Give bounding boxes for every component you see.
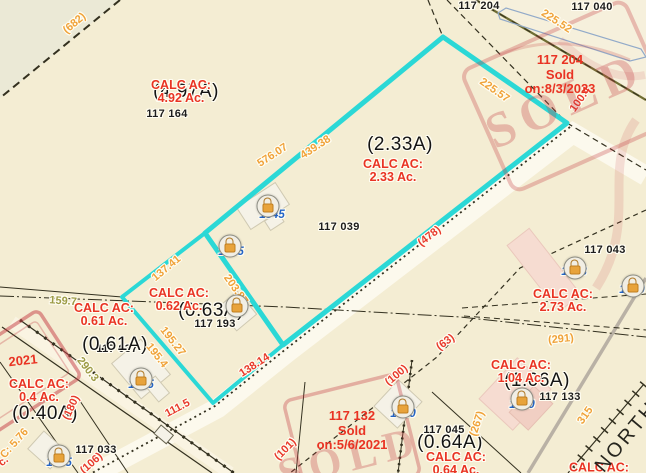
parcel-id-label: 117 164 (146, 109, 187, 121)
calc-acreage-label: CALC AC:2.33 Ac. (363, 158, 423, 184)
calc-acreage-label: CALC AC:0.62 Ac. (149, 287, 209, 313)
padlock-marker-icon[interactable] (392, 396, 415, 419)
deed-acreage-label: (2.33A) (367, 135, 433, 155)
calc-acreage-label: CALC AC:4.92 Ac. (151, 79, 211, 105)
padlock-marker-icon[interactable] (564, 257, 587, 280)
padlock-marker-icon[interactable] (48, 445, 71, 468)
padlock-marker-icon[interactable] (511, 388, 534, 411)
calc-acreage-label: CALC AC:2.73 Ac. (533, 288, 593, 314)
parcel-id-label: 117 039 (318, 222, 359, 234)
calc-acreage-label: CALC AC:0.61 Ac. (74, 302, 134, 328)
sold-stamp-text: 117 132Soldon:5/6/2021 (317, 409, 388, 453)
dimension-label: 137.41 (150, 254, 183, 284)
sold-stamp-text: 117 204Soldon:8/3/2023 (525, 53, 596, 97)
sold-stamp-text: 2021 (8, 352, 38, 369)
calc-acreage-label: CALC AC:0.64 Ac. (426, 451, 486, 473)
padlock-marker-icon[interactable] (130, 368, 153, 391)
dimension-label: (267) (469, 410, 488, 438)
dimension-label: (291) (548, 333, 575, 347)
padlock-marker-icon[interactable] (622, 275, 645, 298)
parcel-id-label: 117 204 (458, 1, 499, 13)
dimension-label: 439.38 (299, 134, 334, 162)
calc-acreage-label: CALC AC:0.4 Ac. (9, 378, 69, 404)
dimension-label: 576.07 (256, 142, 291, 170)
map-label-layer: 117 204117 040117 164117 039117 193117 0… (0, 0, 646, 473)
padlock-marker-icon[interactable] (257, 195, 280, 218)
dimension-label: (682) (61, 11, 88, 36)
dimension-label: 315 (576, 405, 596, 427)
dimension-label: 290.3 (74, 356, 100, 385)
parcel-id-label: 117 133 (539, 392, 580, 404)
deed-acreage-label: (0.61A) (82, 335, 148, 355)
dimension-label: (478) (416, 225, 443, 250)
calc-acreage-label: CALC AC:1.04 Ac. (491, 359, 551, 385)
parcel-id-label: 117 043 (584, 245, 625, 257)
padlock-marker-icon[interactable] (219, 235, 242, 258)
dimension-label: 159.7 (49, 295, 77, 308)
dimension-label: 225.52 (539, 8, 574, 36)
road-name-label: NORTH (591, 397, 646, 473)
dimension-label: 138.14 (238, 352, 273, 380)
dimension-label: (100) (383, 363, 410, 388)
parcel-id-label: 117 040 (571, 2, 612, 14)
dimension-label: (63) (435, 333, 458, 354)
dimension-label: 195.4 (143, 342, 169, 371)
parcel-map-canvas[interactable]: 117 204117 040117 164117 039117 193117 0… (0, 0, 646, 473)
dimension-label: 111.5 (164, 398, 193, 421)
padlock-marker-icon[interactable] (226, 295, 249, 318)
